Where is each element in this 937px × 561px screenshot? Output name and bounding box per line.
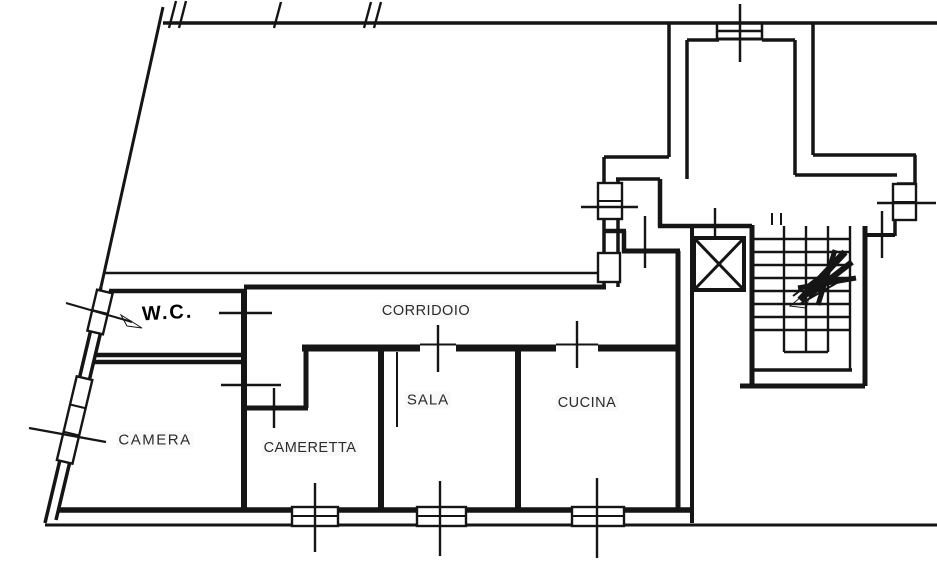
room-label-sala: SALA — [405, 392, 451, 409]
window-camera-left — [57, 376, 92, 463]
room-label-camera: CAMERA — [116, 432, 193, 449]
room-label-cucina: CUCINA — [556, 395, 619, 411]
exterior-wall-left — [29, 287, 142, 523]
floor-plan-canvas: W.C. CORRIDOIO CAMERA CAMERETTA SALA CUC… — [0, 0, 937, 561]
stair-landing-walls — [604, 23, 916, 289]
bottom-windows — [292, 478, 624, 558]
elevator-shaft — [694, 238, 744, 290]
room-label-corridoio: CORRIDOIO — [380, 303, 472, 319]
entry-threshold — [717, 4, 762, 62]
room-label-cameretta: CAMERETTA — [262, 440, 359, 456]
room-label-wc: W.C. — [141, 301, 193, 327]
staircase — [740, 213, 865, 386]
landing-windows — [581, 183, 936, 282]
stair-treads — [752, 213, 850, 370]
floor-plan-drawing — [0, 0, 937, 561]
